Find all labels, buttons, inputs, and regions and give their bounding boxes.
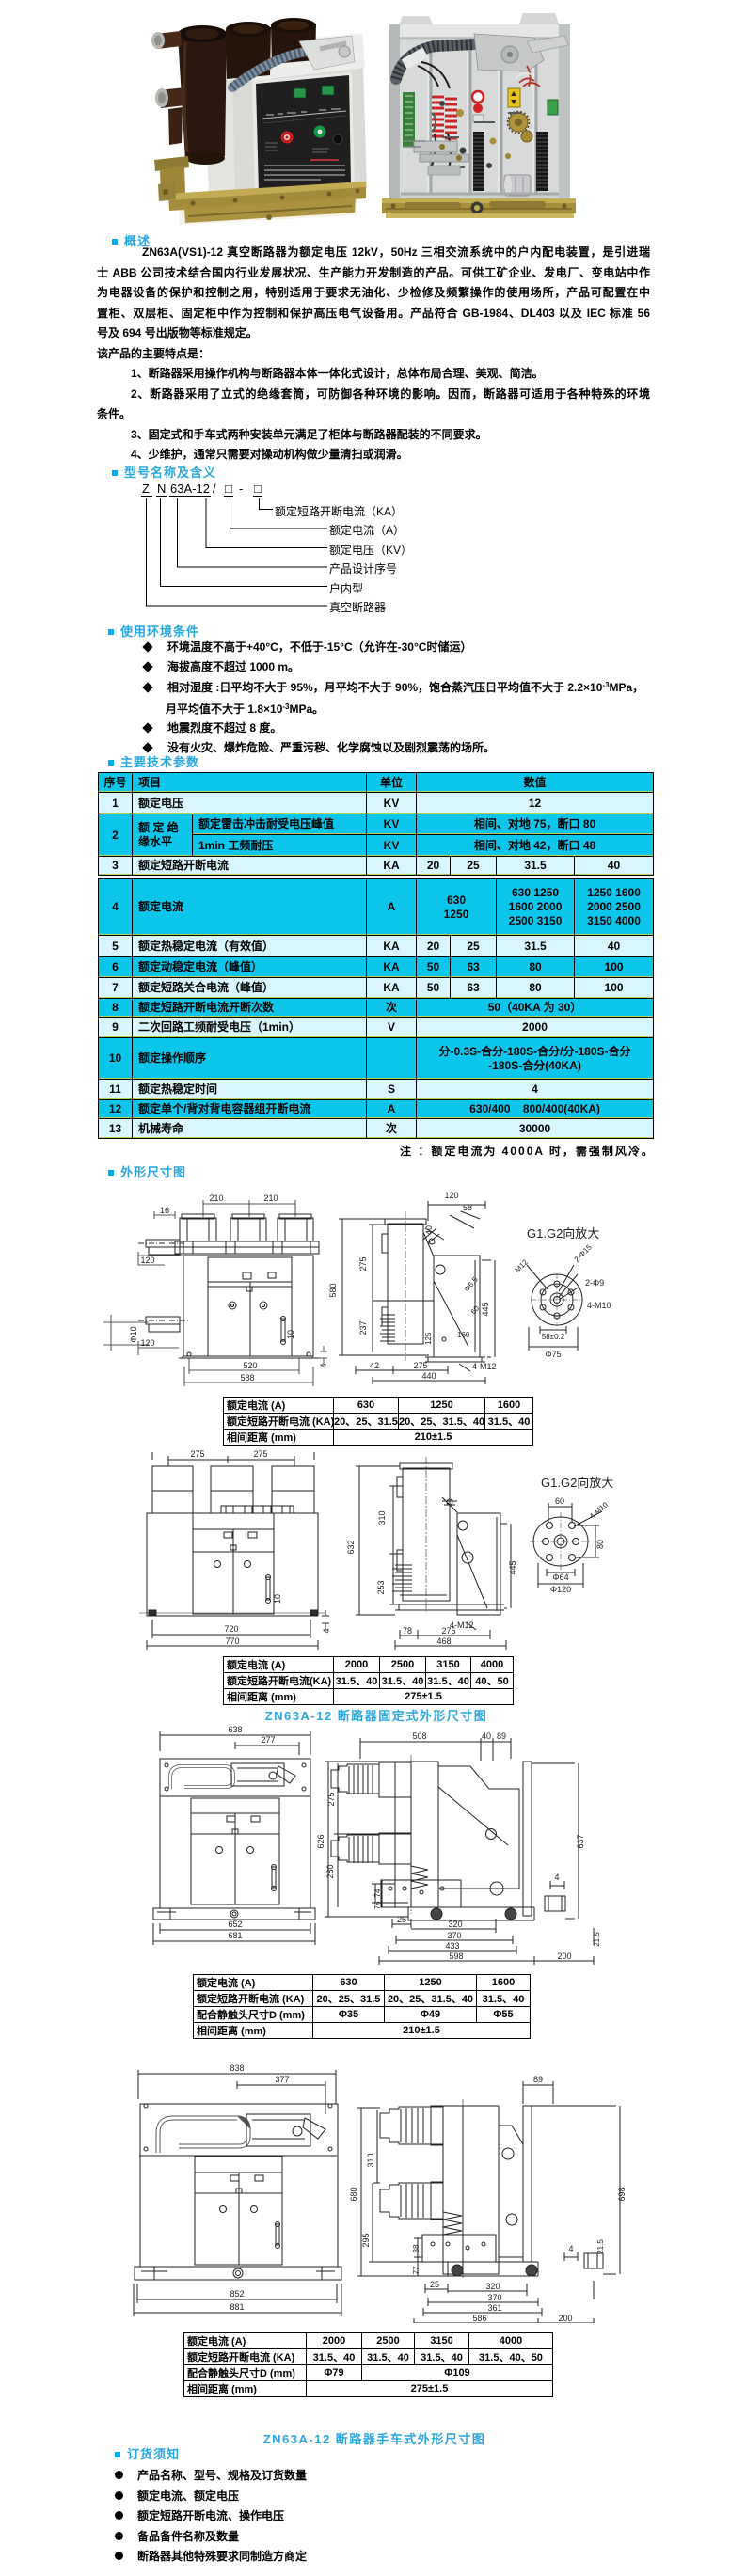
- svg-text:4: 4: [322, 1628, 331, 1633]
- svg-text:320: 320: [485, 2282, 500, 2291]
- svg-text:852: 852: [230, 2289, 244, 2299]
- svg-text:275: 275: [358, 1256, 368, 1271]
- svg-text:40: 40: [424, 1225, 434, 1235]
- svg-text:445: 445: [481, 1302, 490, 1316]
- svg-text:632: 632: [346, 1540, 356, 1554]
- svg-text:210: 210: [209, 1193, 223, 1203]
- svg-text:89: 89: [497, 1731, 506, 1741]
- svg-text:4: 4: [568, 2244, 573, 2253]
- svg-text:277: 277: [261, 1735, 275, 1745]
- svg-text:40: 40: [482, 1731, 491, 1741]
- svg-text:4: 4: [319, 1363, 328, 1367]
- svg-text:120: 120: [140, 1338, 154, 1348]
- svg-text:10: 10: [273, 1594, 282, 1604]
- svg-text:21.5: 21.5: [593, 1932, 601, 1947]
- svg-text:42: 42: [370, 1361, 379, 1370]
- svg-text:626: 626: [316, 1834, 325, 1848]
- svg-text:280: 280: [325, 1864, 335, 1878]
- svg-text:275: 275: [190, 1449, 204, 1459]
- svg-text:770: 770: [225, 1636, 239, 1646]
- svg-text:520: 520: [243, 1361, 257, 1370]
- svg-text:445: 445: [508, 1560, 517, 1574]
- svg-text:4-M10: 4-M10: [587, 1301, 611, 1310]
- svg-text:160: 160: [457, 1331, 470, 1339]
- svg-text:361: 361: [487, 2303, 501, 2313]
- svg-text:60: 60: [555, 1496, 564, 1506]
- svg-text:74: 74: [373, 1889, 382, 1897]
- svg-text:G1.G2向放大: G1.G2向放大: [541, 1476, 613, 1490]
- svg-text:88: 88: [412, 2244, 421, 2252]
- svg-text:G1.G2向放大: G1.G2向放大: [527, 1226, 599, 1241]
- svg-text:25: 25: [430, 2280, 439, 2289]
- svg-text:4-M12: 4-M12: [472, 1362, 497, 1371]
- svg-text:58±0.2: 58±0.2: [542, 1333, 565, 1341]
- svg-text:21.5: 21.5: [596, 2239, 605, 2254]
- svg-text:580: 580: [328, 1283, 338, 1297]
- svg-text:4: 4: [554, 1873, 559, 1882]
- svg-text:295: 295: [361, 2233, 371, 2247]
- svg-text:881: 881: [230, 2302, 244, 2312]
- svg-text:4-M12: 4-M12: [450, 1620, 474, 1630]
- svg-text:586: 586: [472, 2314, 486, 2323]
- svg-text:77: 77: [412, 2266, 421, 2274]
- svg-text:200: 200: [558, 2314, 572, 2323]
- svg-text:4-M10: 4-M10: [588, 1500, 611, 1521]
- svg-text:M12: M12: [514, 1257, 531, 1274]
- svg-text:16: 16: [160, 1206, 169, 1215]
- svg-text:89: 89: [533, 2075, 543, 2084]
- svg-text:377: 377: [275, 2075, 289, 2084]
- svg-text:2-Φ9: 2-Φ9: [585, 1278, 604, 1288]
- svg-text:210: 210: [263, 1193, 278, 1203]
- svg-text:Φ120: Φ120: [550, 1585, 571, 1594]
- svg-text:370: 370: [447, 1931, 461, 1940]
- svg-text:370: 370: [487, 2293, 501, 2302]
- svg-text:598: 598: [449, 1952, 463, 1961]
- svg-text:637: 637: [576, 1834, 585, 1848]
- svg-text:440: 440: [421, 1371, 436, 1381]
- svg-text:58: 58: [463, 1203, 472, 1212]
- svg-text:Φ10: Φ10: [129, 1326, 138, 1342]
- svg-text:508: 508: [412, 1731, 426, 1741]
- svg-text:25: 25: [397, 1915, 406, 1924]
- svg-text:Φ6.5: Φ6.5: [463, 1275, 480, 1294]
- svg-text:681: 681: [228, 1931, 242, 1940]
- svg-text:80: 80: [595, 1540, 605, 1549]
- svg-text:468: 468: [436, 1636, 451, 1646]
- svg-text:638: 638: [228, 1726, 242, 1734]
- svg-text:588: 588: [240, 1373, 254, 1383]
- svg-text:275: 275: [413, 1361, 427, 1370]
- svg-text:838: 838: [230, 2064, 244, 2073]
- svg-text:120: 120: [140, 1256, 154, 1265]
- svg-text:237: 237: [358, 1320, 368, 1335]
- svg-text:310: 310: [366, 2153, 375, 2167]
- svg-text:698: 698: [617, 2187, 627, 2201]
- svg-text:120: 120: [444, 1191, 458, 1200]
- svg-text:680: 680: [349, 2187, 358, 2201]
- svg-text:78: 78: [403, 1626, 412, 1636]
- svg-text:310: 310: [377, 1510, 387, 1525]
- svg-text:Φ64: Φ64: [552, 1572, 568, 1582]
- svg-text:433: 433: [445, 1941, 459, 1951]
- svg-text:Φ75: Φ75: [545, 1350, 561, 1359]
- svg-text:76: 76: [373, 1901, 382, 1909]
- svg-text:10: 10: [286, 1330, 295, 1339]
- svg-text:200: 200: [557, 1952, 571, 1961]
- svg-text:320: 320: [448, 1920, 462, 1929]
- svg-text:2-Φ15: 2-Φ15: [573, 1242, 595, 1264]
- svg-text:125: 125: [424, 1332, 433, 1345]
- svg-text:652: 652: [228, 1920, 242, 1929]
- svg-text:275: 275: [253, 1449, 267, 1459]
- svg-text:275: 275: [326, 1792, 336, 1806]
- svg-text:253: 253: [376, 1580, 386, 1594]
- svg-text:720: 720: [224, 1624, 238, 1634]
